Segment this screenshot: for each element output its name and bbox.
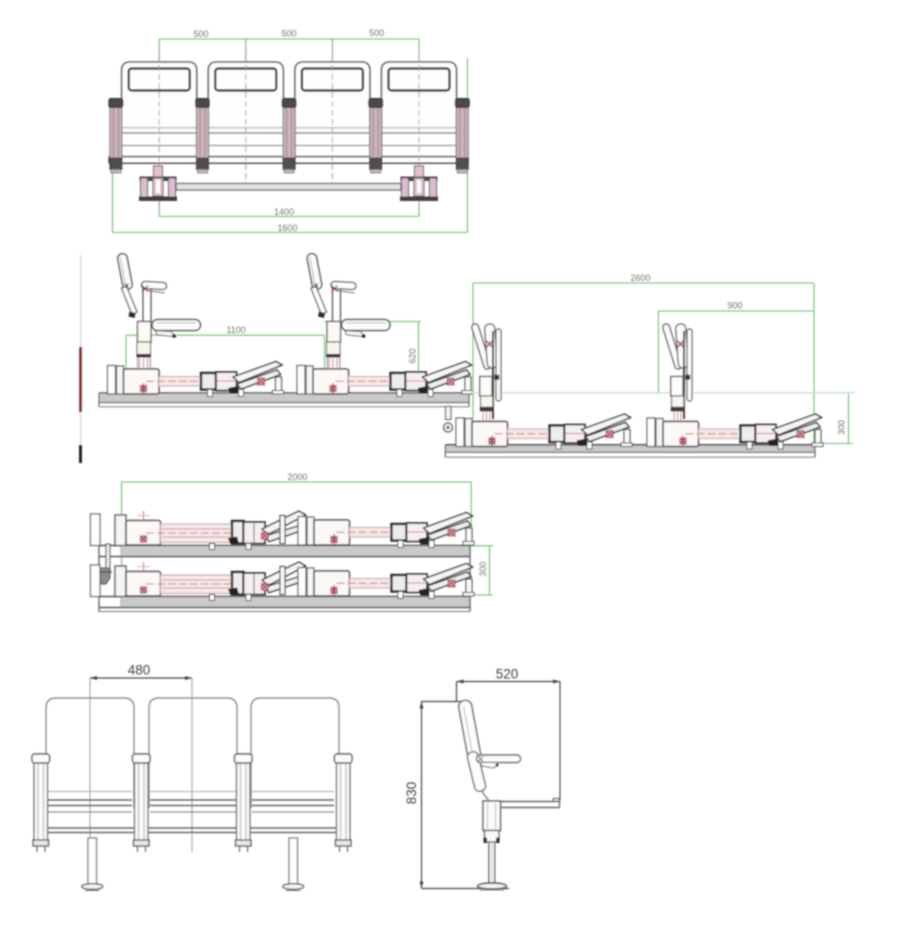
svg-text:2000: 2000 — [287, 472, 307, 482]
svg-text:500: 500 — [281, 29, 296, 39]
svg-text:2600: 2600 — [630, 273, 650, 283]
svg-text:620: 620 — [408, 348, 418, 363]
svg-text:520: 520 — [496, 667, 519, 682]
svg-text:500: 500 — [369, 28, 384, 38]
svg-text:830: 830 — [404, 782, 419, 805]
svg-text:300: 300 — [837, 420, 847, 435]
svg-text:1600: 1600 — [277, 223, 297, 233]
svg-text:480: 480 — [128, 663, 151, 678]
svg-text:500: 500 — [193, 29, 208, 39]
svg-text:900: 900 — [727, 301, 742, 311]
svg-text:1400: 1400 — [274, 207, 294, 217]
svg-text:1100: 1100 — [226, 325, 245, 335]
svg-text:300: 300 — [478, 561, 488, 576]
